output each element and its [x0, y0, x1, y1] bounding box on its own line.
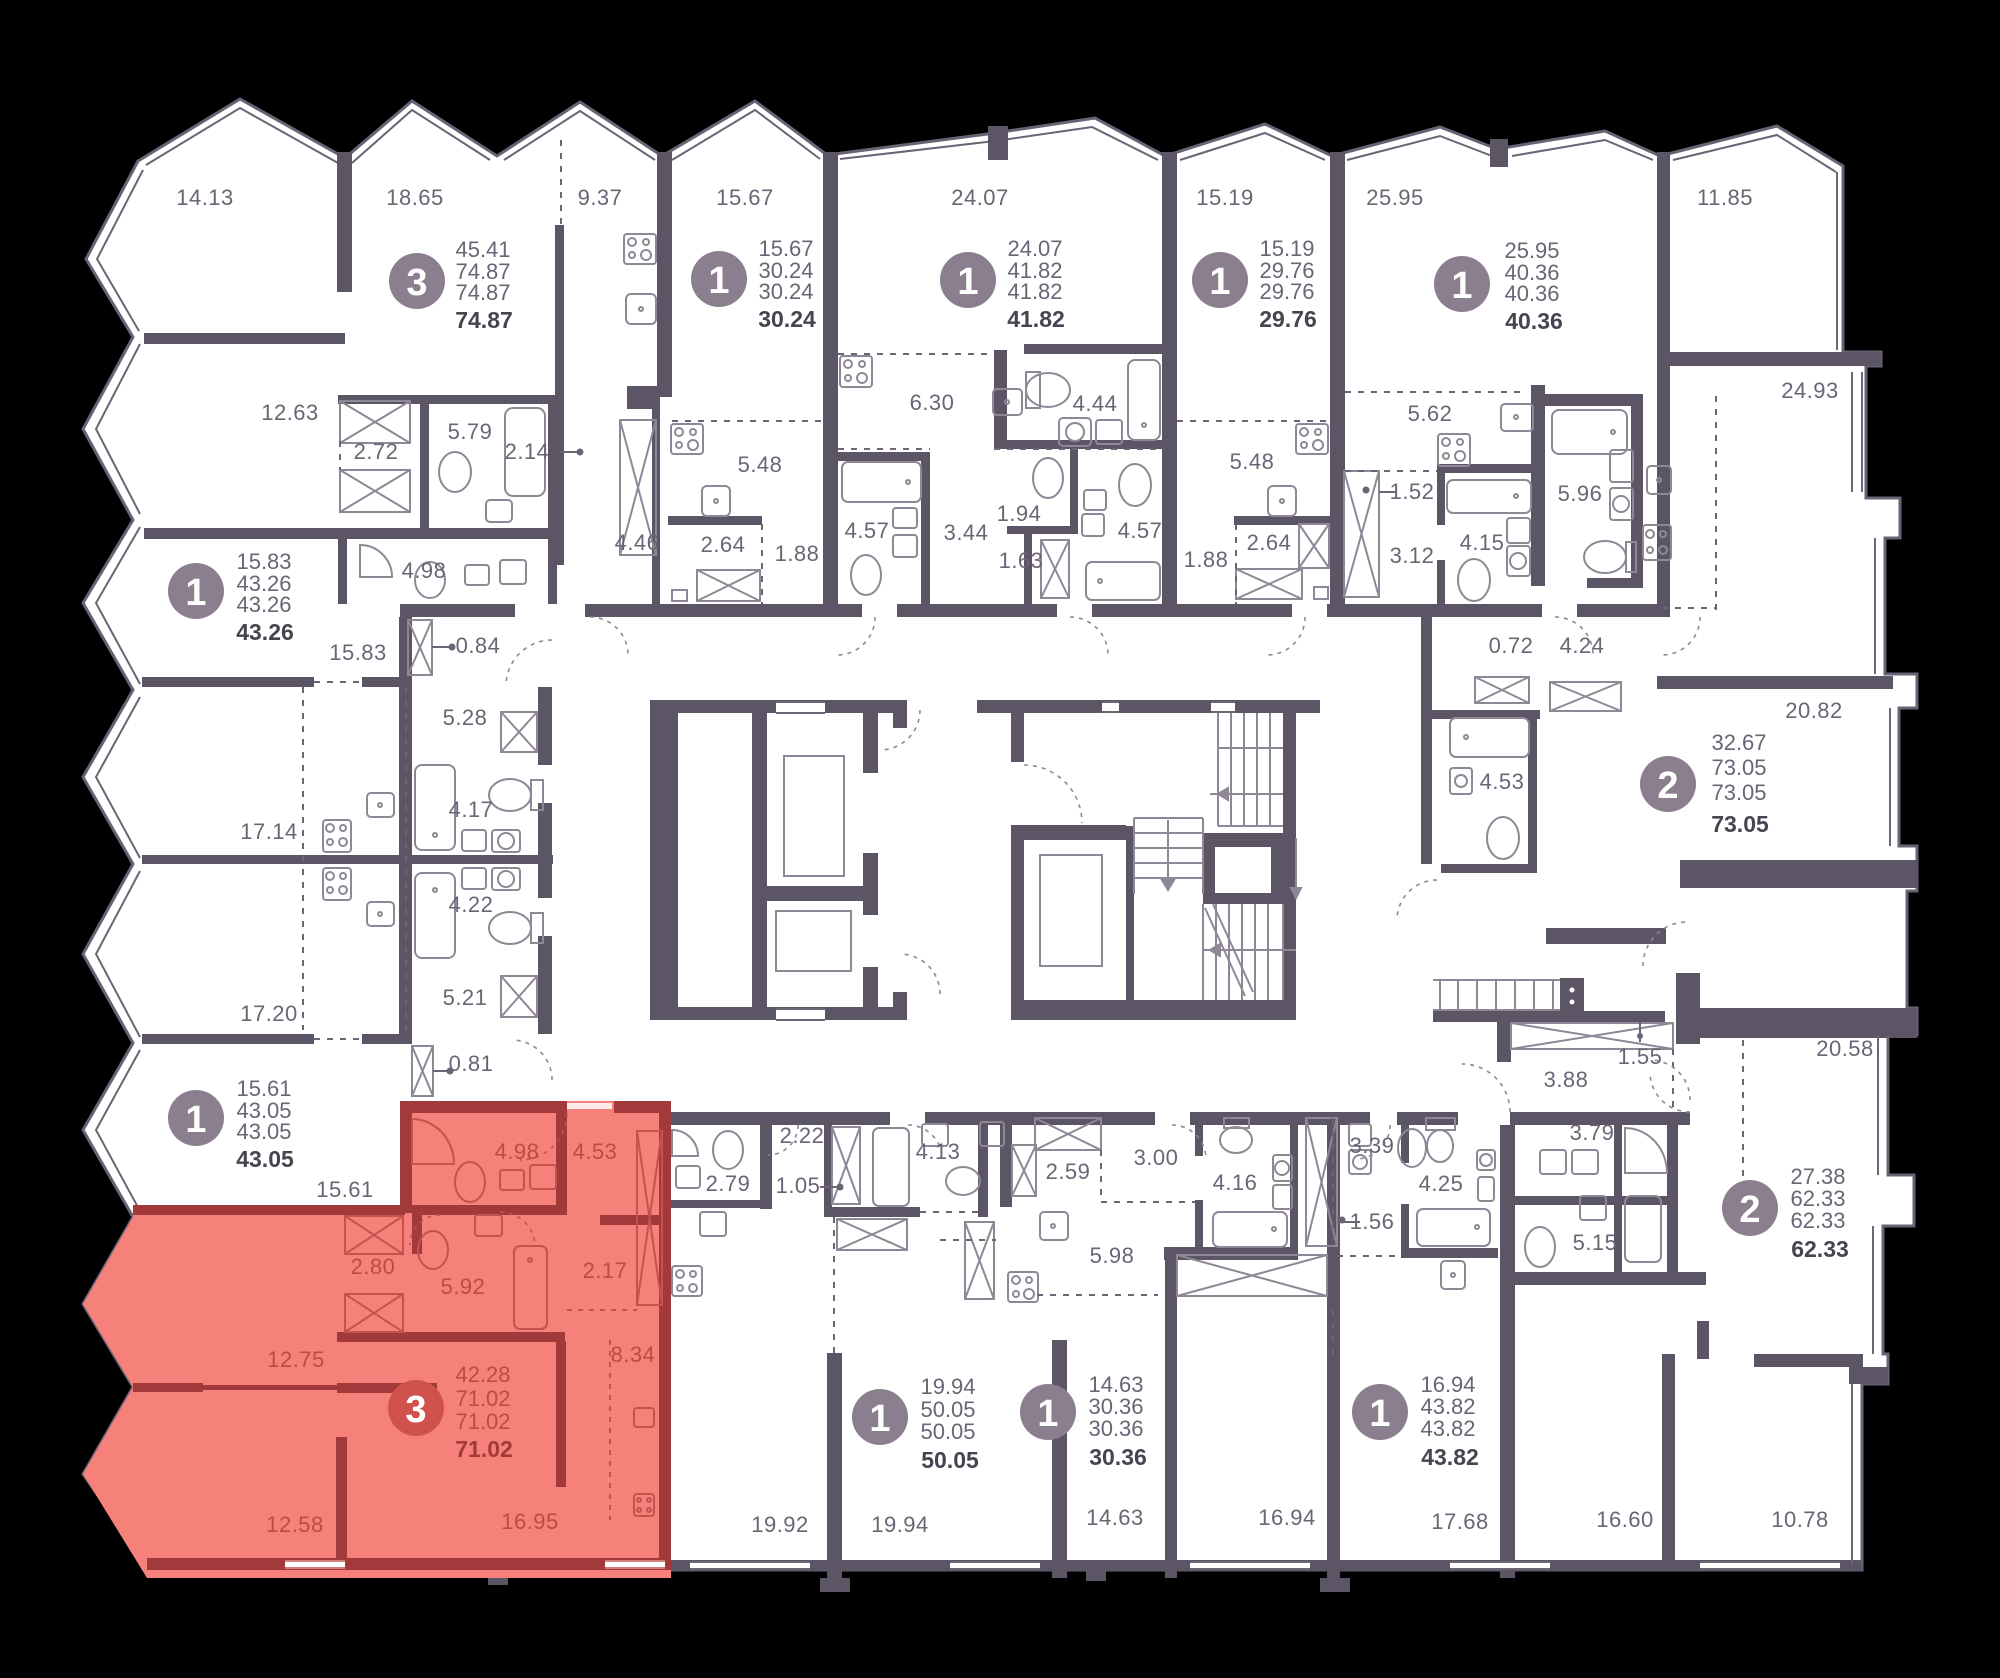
svg-text:2.79: 2.79	[706, 1171, 751, 1196]
svg-text:30.24: 30.24	[758, 279, 813, 304]
svg-text:3.39: 3.39	[1350, 1133, 1395, 1158]
svg-text:14.63: 14.63	[1086, 1505, 1144, 1530]
svg-text:1.63: 1.63	[999, 548, 1044, 573]
svg-text:5.92: 5.92	[441, 1274, 486, 1299]
svg-text:5.48: 5.48	[738, 452, 783, 477]
svg-text:5.28: 5.28	[443, 705, 488, 730]
svg-text:10.78: 10.78	[1771, 1507, 1829, 1532]
svg-text:50.05: 50.05	[921, 1447, 979, 1473]
svg-text:11.85: 11.85	[1697, 185, 1753, 210]
svg-text:3.79: 3.79	[1570, 1120, 1615, 1145]
svg-text:25.95: 25.95	[1366, 185, 1424, 210]
svg-text:2: 2	[1657, 765, 1678, 807]
svg-text:5.62: 5.62	[1408, 401, 1453, 426]
svg-text:2.17: 2.17	[583, 1258, 628, 1283]
svg-text:4.24: 4.24	[1560, 633, 1605, 658]
svg-text:1.56: 1.56	[1350, 1209, 1395, 1234]
svg-text:1: 1	[708, 260, 729, 302]
svg-text:71.02: 71.02	[455, 1386, 510, 1411]
svg-text:1: 1	[1209, 261, 1230, 303]
svg-text:43.05: 43.05	[236, 1119, 291, 1144]
svg-text:16.94: 16.94	[1258, 1505, 1316, 1530]
svg-text:1: 1	[1369, 1393, 1390, 1435]
svg-text:4.17: 4.17	[449, 797, 494, 822]
svg-text:32.67: 32.67	[1711, 730, 1766, 755]
svg-text:15.83: 15.83	[329, 640, 387, 665]
svg-text:4.46: 4.46	[615, 530, 660, 555]
svg-text:4.25: 4.25	[1419, 1171, 1464, 1196]
svg-text:4.57: 4.57	[1118, 518, 1163, 543]
svg-text:40.36: 40.36	[1505, 308, 1563, 334]
svg-text:74.87: 74.87	[455, 280, 510, 305]
svg-text:30.24: 30.24	[758, 306, 816, 332]
svg-text:2.80: 2.80	[351, 1254, 396, 1279]
svg-text:15.61: 15.61	[316, 1177, 374, 1202]
svg-text:5.21: 5.21	[443, 985, 488, 1010]
svg-text:2.64: 2.64	[1247, 530, 1292, 555]
svg-text:1: 1	[1037, 1393, 1058, 1435]
svg-text:1: 1	[1451, 265, 1472, 307]
svg-text:71.02: 71.02	[455, 1436, 513, 1462]
svg-text:41.82: 41.82	[1007, 279, 1062, 304]
svg-text:73.05: 73.05	[1711, 780, 1766, 805]
svg-text:12.58: 12.58	[266, 1512, 324, 1537]
svg-text:62.33: 62.33	[1790, 1208, 1845, 1233]
svg-text:4.22: 4.22	[449, 892, 494, 917]
svg-text:19.94: 19.94	[871, 1512, 929, 1537]
svg-text:3: 3	[405, 1389, 426, 1431]
svg-text:29.76: 29.76	[1259, 306, 1317, 332]
svg-text:29.76: 29.76	[1259, 279, 1314, 304]
svg-text:40.36: 40.36	[1504, 281, 1559, 306]
svg-text:62.33: 62.33	[1791, 1236, 1849, 1262]
svg-text:15.67: 15.67	[716, 185, 774, 210]
svg-text:43.82: 43.82	[1421, 1444, 1479, 1470]
svg-text:1.88: 1.88	[1184, 547, 1229, 572]
svg-text:42.28: 42.28	[455, 1362, 510, 1387]
svg-text:2.59: 2.59	[1046, 1159, 1091, 1184]
svg-text:2.72: 2.72	[354, 439, 399, 464]
svg-text:43.82: 43.82	[1420, 1416, 1475, 1441]
svg-text:5.15: 5.15	[1573, 1230, 1618, 1255]
svg-text:0.81: 0.81	[449, 1051, 494, 1076]
svg-text:1: 1	[957, 261, 978, 303]
svg-text:2: 2	[1739, 1189, 1760, 1231]
svg-text:74.87: 74.87	[455, 307, 513, 333]
svg-text:4.15: 4.15	[1460, 530, 1505, 555]
svg-text:5.48: 5.48	[1230, 449, 1275, 474]
svg-text:3.00: 3.00	[1134, 1145, 1179, 1170]
svg-text:17.14: 17.14	[240, 819, 298, 844]
svg-text:43.26: 43.26	[236, 619, 294, 645]
svg-text:5.96: 5.96	[1558, 481, 1603, 506]
svg-text:18.65: 18.65	[386, 185, 444, 210]
svg-text:2.22: 2.22	[780, 1123, 825, 1148]
svg-text:1.88: 1.88	[775, 541, 820, 566]
svg-text:50.05: 50.05	[920, 1419, 975, 1444]
svg-text:2.14: 2.14	[505, 439, 550, 464]
svg-text:5.79: 5.79	[448, 419, 493, 444]
svg-text:16.95: 16.95	[501, 1509, 559, 1534]
svg-text:8.34: 8.34	[611, 1342, 656, 1367]
svg-text:16.60: 16.60	[1596, 1507, 1654, 1532]
svg-text:19.94: 19.94	[920, 1374, 975, 1399]
svg-text:4.13: 4.13	[916, 1139, 961, 1164]
svg-text:43.05: 43.05	[236, 1146, 294, 1172]
svg-text:1.52: 1.52	[1390, 479, 1435, 504]
svg-text:71.02: 71.02	[455, 1409, 510, 1434]
svg-text:2.64: 2.64	[701, 532, 746, 557]
svg-text:17.20: 17.20	[240, 1001, 298, 1026]
svg-text:0.84: 0.84	[456, 633, 501, 658]
svg-text:4.44: 4.44	[1073, 391, 1118, 416]
svg-text:0.72: 0.72	[1489, 633, 1534, 658]
svg-text:3: 3	[406, 262, 427, 304]
svg-text:12.63: 12.63	[261, 400, 319, 425]
svg-text:1: 1	[185, 1099, 206, 1141]
svg-text:1: 1	[869, 1398, 890, 1440]
svg-text:24.93: 24.93	[1781, 378, 1839, 403]
svg-text:4.57: 4.57	[845, 518, 890, 543]
svg-text:43.26: 43.26	[236, 592, 291, 617]
svg-text:3.88: 3.88	[1544, 1067, 1589, 1092]
svg-text:73.05: 73.05	[1711, 755, 1766, 780]
svg-text:30.36: 30.36	[1089, 1444, 1147, 1470]
svg-text:14.13: 14.13	[176, 185, 234, 210]
svg-text:4.53: 4.53	[1480, 769, 1525, 794]
svg-text:1.94: 1.94	[997, 501, 1042, 526]
svg-text:1.05: 1.05	[776, 1173, 821, 1198]
svg-text:30.36: 30.36	[1088, 1416, 1143, 1441]
svg-text:1: 1	[185, 572, 206, 614]
svg-text:17.68: 17.68	[1431, 1509, 1489, 1534]
svg-text:6.30: 6.30	[910, 390, 955, 415]
svg-text:15.19: 15.19	[1196, 185, 1254, 210]
svg-text:12.75: 12.75	[267, 1347, 325, 1372]
svg-text:3.44: 3.44	[944, 520, 989, 545]
svg-text:4.16: 4.16	[1213, 1170, 1258, 1195]
svg-text:1.55: 1.55	[1618, 1044, 1663, 1069]
svg-text:4.98: 4.98	[402, 558, 447, 583]
svg-text:73.05: 73.05	[1711, 811, 1769, 837]
svg-text:19.92: 19.92	[751, 1512, 809, 1537]
svg-text:3.12: 3.12	[1390, 543, 1435, 568]
svg-text:4.53: 4.53	[573, 1139, 618, 1164]
svg-text:5.98: 5.98	[1090, 1243, 1135, 1268]
svg-text:41.82: 41.82	[1007, 306, 1065, 332]
svg-text:20.58: 20.58	[1816, 1036, 1874, 1061]
svg-text:20.82: 20.82	[1785, 698, 1843, 723]
svg-text:4.98: 4.98	[495, 1139, 540, 1164]
svg-text:24.07: 24.07	[951, 185, 1009, 210]
svg-text:9.37: 9.37	[578, 185, 623, 210]
